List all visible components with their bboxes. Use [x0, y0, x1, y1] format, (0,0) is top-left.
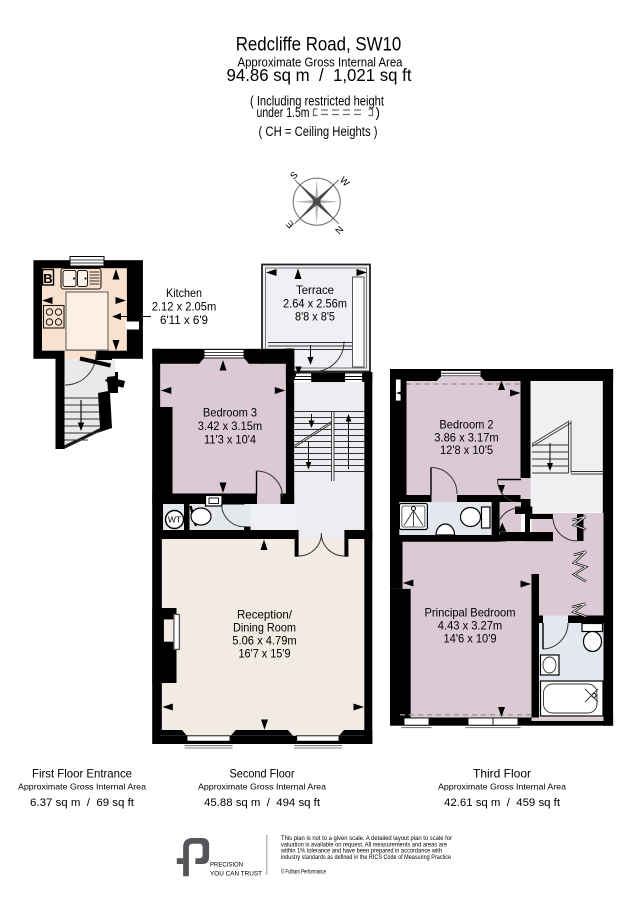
svg-text:Kitchen: Kitchen — [166, 286, 202, 300]
svg-text:Approximate Gross Internal Are: Approximate Gross Internal Area — [438, 782, 566, 792]
svg-text:Principal Bedroom: Principal Bedroom — [425, 606, 516, 620]
svg-text:( CH = Ceiling Heights ): ( CH = Ceiling Heights ) — [259, 124, 378, 139]
svg-text:Second Floor: Second Floor — [230, 767, 295, 781]
svg-text:6'11 x 6'9: 6'11 x 6'9 — [160, 313, 208, 327]
svg-text:First Floor Entrance: First Floor Entrance — [32, 767, 132, 781]
svg-text:Dining Room: Dining Room — [233, 621, 296, 635]
svg-text:16'7 x 15'9: 16'7 x 15'9 — [239, 647, 291, 661]
svg-text:This plan is not to a given sc: This plan is not to a given scale. A det… — [281, 836, 452, 842]
svg-text:2.12 x 2.05m: 2.12 x 2.05m — [152, 300, 217, 314]
svg-text:Reception/: Reception/ — [237, 608, 293, 622]
svg-text:3.42 x 3.15m: 3.42 x 3.15m — [198, 419, 262, 433]
svg-text:WT: WT — [168, 515, 181, 525]
svg-text:YOU CAN TRUST: YOU CAN TRUST — [210, 870, 262, 877]
svg-text:6.37 sq m / 69 sq ft: 6.37 sq m / 69 sq ft — [30, 797, 134, 809]
svg-text:Third Floor: Third Floor — [473, 767, 531, 781]
svg-text:5.06 x 4.79m: 5.06 x 4.79m — [232, 634, 296, 648]
svg-text:94.86 sq m / 1,021 sq ft: 94.86 sq m / 1,021 sq ft — [227, 65, 412, 85]
svg-text:42.61 sq m / 459 sq ft: 42.61 sq m / 459 sq ft — [444, 797, 560, 809]
svg-text:N: N — [332, 223, 345, 236]
svg-text:14'6 x 10'9: 14'6 x 10'9 — [444, 632, 497, 646]
svg-text:W: W — [337, 175, 351, 189]
svg-text:E: E — [284, 218, 296, 230]
svg-text:PRECISION: PRECISION — [210, 861, 243, 868]
svg-text:11'3 x 10'4: 11'3 x 10'4 — [204, 432, 256, 446]
svg-text:Terrace: Terrace — [296, 283, 334, 297]
svg-text:B: B — [43, 271, 52, 286]
svg-text:Approximate Gross Internal Are: Approximate Gross Internal Area — [18, 782, 146, 792]
svg-text:S: S — [288, 170, 300, 182]
svg-text:Bedroom 3: Bedroom 3 — [203, 406, 257, 420]
svg-text:within 1% tolerance and have b: within 1% tolerance and have been prepar… — [280, 849, 442, 855]
svg-text:8'8 x 8'5: 8'8 x 8'5 — [295, 310, 335, 324]
svg-text:under 1.5m: under 1.5m — [257, 105, 310, 120]
svg-text:12'8 x 10'5: 12'8 x 10'5 — [440, 443, 493, 457]
svg-text:45.88 sq m / 494 sq ft: 45.88 sq m / 494 sq ft — [204, 797, 320, 809]
svg-text:Redcliffe Road, SW10: Redcliffe Road, SW10 — [236, 34, 402, 56]
svg-text:© Fulham Performance: © Fulham Performance — [281, 868, 326, 875]
svg-text:Approximate Gross Internal Are: Approximate Gross Internal Area — [198, 782, 326, 792]
svg-text:industry standards as defined: industry standards as defined in the RIC… — [281, 855, 452, 861]
svg-text:4.43 x 3.27m: 4.43 x 3.27m — [438, 619, 502, 633]
svg-text:2.64 x 2.56m: 2.64 x 2.56m — [283, 297, 347, 311]
svg-text:valuation is available on requ: valuation is available on request. All m… — [281, 842, 448, 848]
svg-text:): ) — [376, 105, 381, 120]
